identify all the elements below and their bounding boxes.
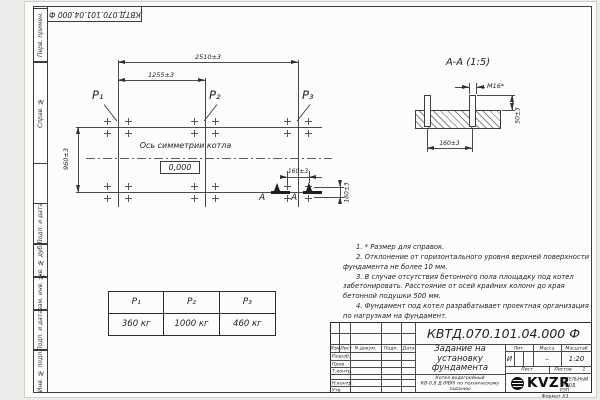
section-cut-line (271, 191, 290, 194)
level-mark: 0,000 (169, 163, 192, 172)
load-table: Р₁ Р₂ Р₃ 360 кг 1000 кг 460 кг (108, 291, 276, 336)
tb-row-tkontr: Т.контр. (332, 369, 352, 374)
tb-col-ndokum: N докум. (353, 346, 377, 351)
dim-protrusion-text: 50±3 (515, 103, 522, 129)
load-table-value: 460 кг (220, 314, 275, 336)
section-letter: А (259, 193, 265, 203)
section-view-arrow (274, 183, 280, 191)
frame-field-inv-podl: Инв. № подл. (33, 350, 48, 393)
arrowhead (510, 95, 514, 102)
tb-line (514, 352, 515, 366)
tb-line (523, 352, 524, 366)
symmetry-center-line (86, 158, 332, 159)
tb-lit-value: И (505, 355, 514, 363)
arrowhead (291, 60, 298, 64)
arrowhead (510, 103, 514, 110)
top-stamp-box: КВТД.070.101.04.000 Ф (47, 6, 142, 22)
tb-row-razrab: Разраб. (332, 354, 350, 359)
load-table-header: Р₁ (109, 292, 164, 314)
column-axis-3 (298, 60, 299, 207)
tb-col-data: Дата (403, 346, 414, 351)
tb-scale-label: Масштаб (564, 346, 588, 351)
tb-row-nkontr: Н.контр. (332, 381, 353, 386)
note-2: 2. Отклонение от горизонтального уровня … (343, 253, 595, 273)
extension-line (472, 129, 473, 152)
frame-field-perv-primen: Перв. примен. (33, 8, 48, 62)
tb-scale-value: 1:20 (561, 355, 592, 363)
arrowhead (76, 185, 80, 192)
note-4: 4. Фундамент под котел разрабатывает про… (343, 302, 595, 322)
arrowhead (280, 175, 287, 179)
arrowhead (118, 60, 125, 64)
dimension-line-overall (118, 62, 298, 63)
load-table-value: 360 кг (109, 314, 164, 336)
drawing-sheet: Перв. примен. Справ. № Подп. и дата Инв.… (0, 0, 600, 400)
frame-field-sprav-no: Справ. № (33, 62, 48, 164)
frame-field-vzam-inv: Взам. инв. № (33, 277, 48, 310)
bolt-row-line-top (76, 127, 322, 128)
tb-lit-label: Лит. (508, 346, 530, 351)
section-letter: А (291, 193, 297, 203)
section-cut-line (303, 191, 322, 194)
note-3: 3. В случае отсутствия бетонного пола пл… (343, 273, 595, 303)
tb-row-prov: Пров. (332, 362, 346, 367)
extension-line (469, 83, 470, 94)
load-label-p2: Р₂ (209, 88, 221, 102)
section-view-arrow (306, 183, 312, 191)
load-table-header: Р₂ (164, 292, 219, 314)
load-label-p3: Р₃ (302, 88, 314, 102)
load-table-header: Р₃ (220, 292, 275, 314)
tb-sheets-value: 1 (579, 367, 590, 372)
format-note: Формат А3 (537, 394, 573, 399)
arrowhead (76, 127, 80, 134)
anchor-stud (469, 95, 476, 127)
arrowhead (309, 175, 316, 179)
load-table-value: 1000 кг (164, 314, 219, 336)
column-axis-1 (118, 60, 119, 207)
section-title: А-А (1:5) (413, 57, 523, 68)
arrowhead (338, 180, 342, 187)
tb-product: Котел водогрейный КВ-0,8 Д (РВР) по техн… (419, 376, 500, 391)
extension-line (502, 110, 515, 111)
tb-col-list: Лист (340, 346, 349, 351)
tb-sheet-label: Лист (510, 367, 544, 372)
arrowhead (338, 197, 342, 204)
dimension-line-half (118, 80, 205, 81)
dim-overall-text: 2510±3 (158, 53, 258, 61)
dim-depth-text: 960±3 (62, 146, 70, 172)
dim-bolt-h-text: 160±3 (276, 168, 320, 175)
tb-col-izm: Изм. (330, 346, 338, 351)
dim-stud-spacing-text: 160±3 (427, 140, 472, 147)
tb-title: Задание на установку фундамента (416, 345, 504, 374)
arrowhead (462, 85, 469, 89)
level-mark-box: 0,000 (160, 161, 200, 174)
tb-line (549, 366, 550, 373)
frame-field-podp-data-1: Подп. и дата (33, 203, 48, 244)
load-label-p1: Р₁ (92, 88, 104, 102)
tb-mass-value: – (533, 355, 561, 363)
frame-field-podp-data-2: Подп. и дата (33, 310, 48, 350)
tb-sheets-label: Листов (552, 367, 574, 372)
kvzr-logo-caption: КОТЕЛЬНЫЙ ЗАВОД РЭП (560, 377, 584, 393)
dim-bolt-v-text: 160±3 (344, 178, 351, 208)
tb-line (330, 333, 415, 334)
dimension-line-depth (78, 127, 79, 192)
tb-line (505, 373, 592, 374)
dim-half-text: 1255±3 (121, 71, 201, 79)
arrowhead (477, 85, 484, 89)
tb-doc-number: КВТД.070.101.04.000 Ф (416, 326, 591, 341)
top-doc-number: КВТД.070.101.04.000 Ф (49, 10, 141, 19)
tb-col-podp: Подп. (383, 346, 399, 351)
anchor-stud (424, 95, 431, 127)
thread-callout: М16* (487, 82, 504, 90)
kvzr-emblem-icon (511, 377, 524, 390)
tb-row-utv: Утв. (332, 388, 342, 393)
technical-notes: 1. * Размер для справок. 2. Отклонение о… (343, 243, 595, 322)
axis-caption: Ось симметрии котла (118, 141, 253, 150)
tb-mass-label: Масса (536, 346, 558, 351)
note-1: 1. * Размер для справок. (343, 243, 595, 253)
